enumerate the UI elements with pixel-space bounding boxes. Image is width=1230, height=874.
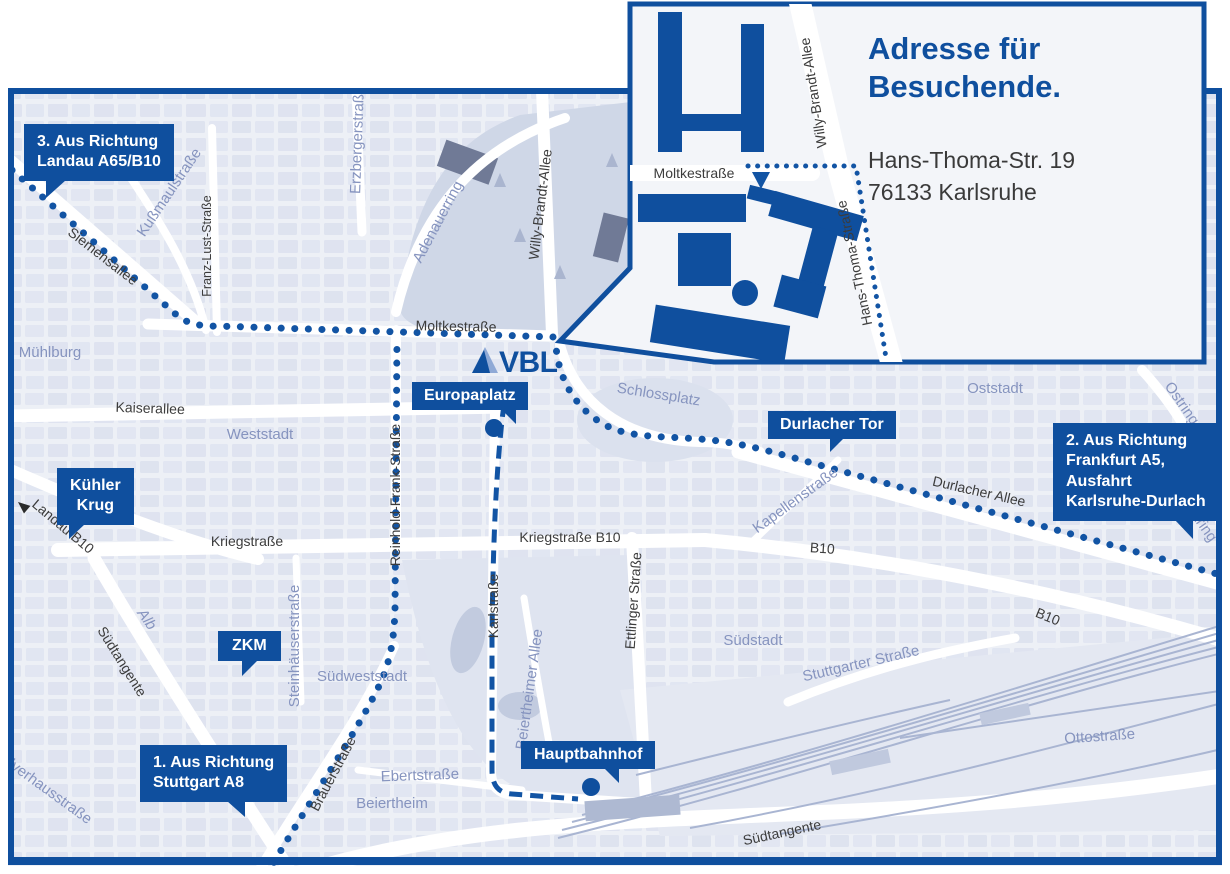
callout-tail [501, 409, 516, 424]
inset-label-moltkestrasse: Moltkestraße [654, 165, 735, 181]
campus-building [658, 114, 764, 131]
callout-line: Frankfurt A5, [1066, 451, 1206, 471]
label-kriegstrasse: Kriegstraße [211, 533, 284, 549]
callout-line: Hauptbahnhof [534, 745, 642, 765]
callout-landau: 3. Aus Richtung Landau A65/B10 [24, 124, 174, 181]
inset-title-line: Adresse für [868, 30, 1061, 68]
label-beiertheim: Beiertheim [356, 795, 428, 812]
callout-tail [604, 768, 619, 783]
callout-frankfurt: 2. Aus Richtung Frankfurt A5, Ausfahrt K… [1053, 423, 1219, 521]
callout-europaplatz: Europaplatz [412, 382, 528, 410]
label-moltkestrasse: Moltkestraße [415, 317, 496, 334]
campus-building [678, 233, 731, 286]
callout-tail [242, 660, 258, 676]
callout-durlacher-tor: Durlacher Tor [768, 411, 896, 439]
label-reinhold-frank-strasse: Reinhold-Frank-Straße [387, 424, 403, 567]
hauptbahnhof-stop-dot [582, 778, 600, 796]
label-kriegstrasse-b10: Kriegstraße B10 [519, 529, 620, 545]
callout-hauptbahnhof: Hauptbahnhof [521, 741, 655, 769]
callout-line: Europaplatz [424, 386, 516, 406]
label-kaiserallee: Kaiserallee [115, 399, 185, 417]
callout-line: 3. Aus Richtung [37, 132, 161, 152]
vbl-directions-map: Siemensallee Franz-Lust-Straße Moltkestr… [0, 0, 1230, 874]
label-b10-mid: B10 [809, 539, 835, 557]
callout-tail [227, 801, 245, 817]
inset-address: Hans-Thoma-Str. 19 76133 Karlsruhe [868, 144, 1075, 208]
callout-line: Stuttgart A8 [153, 773, 274, 793]
callout-line: Karlsruhe-Durlach [1066, 492, 1206, 512]
label-steinhaeuserstrasse: Steinhäuserstraße [286, 585, 303, 708]
callout-line: ZKM [232, 636, 267, 656]
callout-kuehler-krug: Kühler Krug [57, 468, 134, 525]
label-karlstrasse: Karlstraße [485, 574, 501, 639]
label-oststadt: Oststadt [967, 380, 1024, 397]
callout-line: Durlacher Tor [780, 415, 884, 435]
inset-title: Adresse für Besuchende. [868, 30, 1061, 106]
callout-line: Kühler [70, 476, 121, 496]
callout-tail [830, 438, 844, 452]
label-suedstadt: Südstadt [723, 632, 783, 649]
label-ebertstrasse: Ebertstraße [380, 766, 459, 786]
callout-line: 2. Aus Richtung [1066, 431, 1206, 451]
callout-line: Krug [70, 496, 121, 516]
callout-line: 1. Aus Richtung [153, 753, 274, 773]
callout-zkm: ZKM [218, 631, 281, 661]
campus-building [638, 194, 746, 222]
vbl-logo-text: VBL [499, 346, 558, 379]
callout-stuttgart: 1. Aus Richtung Stuttgart A8 [140, 745, 287, 802]
callout-line: Landau A65/B10 [37, 152, 161, 172]
campus-building [741, 24, 764, 152]
inset-address-line: Hans-Thoma-Str. 19 [868, 144, 1075, 176]
label-franz-lust-strasse: Franz-Lust-Straße [200, 195, 214, 296]
callout-line: Ausfahrt [1066, 472, 1206, 492]
campus-building-round [732, 280, 758, 306]
label-weststadt: Weststadt [227, 426, 294, 443]
inset-title-line: Besuchende. [868, 68, 1061, 106]
callout-tail [46, 180, 66, 198]
callout-tail [69, 524, 85, 539]
label-muehlburg: Mühlburg [19, 344, 82, 361]
inset-address-line: 76133 Karlsruhe [868, 176, 1075, 208]
label-suedweststadt: Südweststadt [317, 668, 408, 685]
callout-tail [1175, 520, 1193, 539]
